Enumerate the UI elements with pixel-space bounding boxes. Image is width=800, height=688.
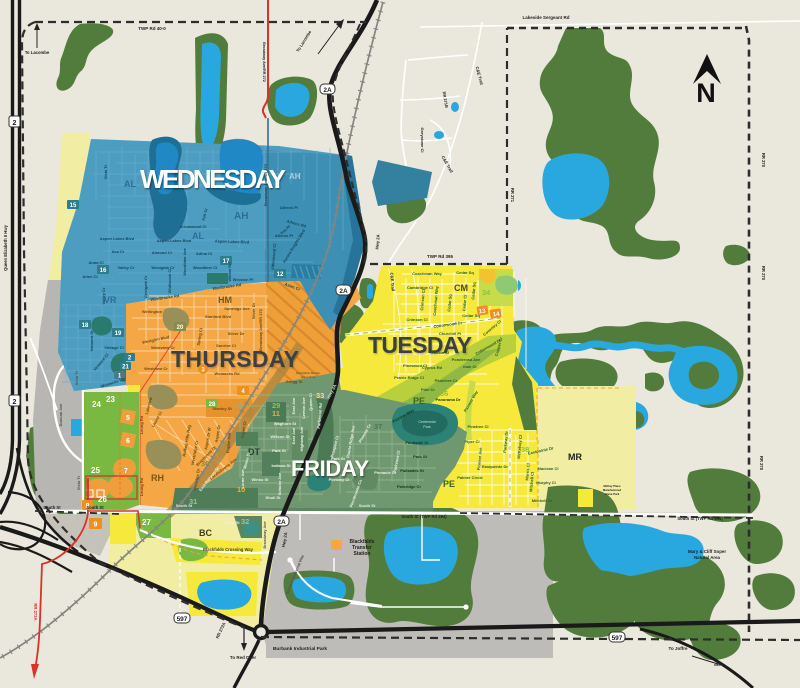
svg-text:Station: Station [354,551,371,557]
svg-text:To Joffre: To Joffre [669,646,688,651]
svg-text:THURSDAY: THURSDAY [171,346,299,372]
svg-text:CM: CM [454,283,468,293]
svg-text:To Red Deer: To Red Deer [230,655,256,660]
svg-text:Natural Area: Natural Area [694,555,721,560]
svg-text:Queen Elizabeth II Hwy: Queen Elizabeth II Hwy [3,224,8,271]
svg-text:Home Park: Home Park [301,375,316,379]
svg-text:Vintage Cl: Vintage Cl [104,345,124,350]
svg-text:20: 20 [177,325,184,331]
svg-text:19: 19 [115,331,122,337]
svg-text:Mary & Cliff Soper: Mary & Cliff Soper [688,549,726,554]
svg-text:Gregg St: Gregg St [286,379,304,384]
svg-text:Portway Cl: Portway Cl [329,477,350,482]
svg-text:Eastpointe Dr: Eastpointe Dr [482,464,508,469]
svg-text:AH: AH [234,211,248,222]
svg-text:BC: BC [199,528,212,538]
svg-text:25: 25 [91,466,100,475]
svg-text:South St: South St [359,503,376,508]
svg-text:Vista Tr: Vista Tr [74,370,79,385]
svg-text:RR 270: RR 270 [761,153,766,168]
svg-text:RR 270: RR 270 [761,266,766,281]
svg-text:Vista Tr: Vista Tr [76,475,81,490]
svg-text:Cassia Cl: Cassia Cl [431,350,449,355]
svg-text:Pinewood Cl: Pinewood Cl [403,363,427,368]
svg-text:AL: AL [124,179,136,189]
svg-text:Maclean Cl: Maclean Cl [538,466,559,471]
svg-text:AH: AH [289,172,301,181]
svg-text:RR 271: RR 271 [510,188,515,203]
svg-text:Greystone Cl: Greystone Cl [420,128,425,153]
svg-text:24: 24 [92,400,101,409]
svg-text:33: 33 [316,391,324,400]
svg-text:South St (TWP Rd 394): South St (TWP Rd 394) [401,514,447,519]
svg-text:Sunrise Cl: Sunrise Cl [216,343,236,348]
svg-text:Crimson Cl: Crimson Cl [406,317,427,322]
svg-text:Westview Cr: Westview Cr [151,345,175,350]
svg-text:Woodbine Ave: Woodbine Ave [182,248,187,276]
svg-text:South St: South St [86,505,104,510]
svg-text:23: 23 [106,395,115,404]
svg-text:Sunridge Ave: Sunridge Ave [224,306,250,311]
svg-text:N: N [696,78,716,108]
svg-text:Almond Cr: Almond Cr [152,250,173,255]
svg-text:RH: RH [151,473,164,483]
svg-text:Churchill Pl: Churchill Pl [439,331,461,336]
svg-text:Lorne Ave: Lorne Ave [240,469,245,489]
svg-text:Plumtree Cr: Plumtree Cr [435,378,458,383]
svg-text:TWP Rd 40-0: TWP Rd 40-0 [138,26,166,31]
svg-text:21: 21 [122,365,129,371]
svg-text:Womacks Rd: Womacks Rd [214,371,240,376]
svg-text:HM: HM [218,295,232,305]
svg-text:6: 6 [126,438,130,445]
svg-text:Anna Cl: Anna Cl [88,260,103,265]
svg-text:Stanford Blvd: Stanford Blvd [205,314,232,319]
svg-text:Aspen Lakes Blvd: Aspen Lakes Blvd [157,238,192,243]
svg-text:Wellington: Wellington [142,309,163,314]
svg-text:Valmont St: Valmont St [89,330,94,351]
svg-text:26: 26 [98,495,107,504]
svg-text:Piper Cl: Piper Cl [464,439,479,444]
svg-text:Ponderosa Ave: Ponderosa Ave [452,357,482,362]
svg-text:Burbank Industrial Park: Burbank Industrial Park [273,646,327,652]
svg-text:Mitchell Cr: Mitchell Cr [532,498,553,503]
svg-text:Indiana St: Indiana St [271,463,291,468]
svg-text:Parkridge Cr: Parkridge Cr [397,484,421,489]
svg-text:Pondside Cr: Pondside Cr [405,440,429,445]
svg-text:12: 12 [277,272,284,278]
svg-text:2A: 2A [339,288,348,295]
svg-text:Arlen Cl: Arlen Cl [82,274,97,279]
svg-text:5: 5 [126,415,130,422]
svg-text:Trout St: Trout St [224,520,240,525]
svg-text:Stanley St: Stanley St [212,406,232,411]
svg-text:Panorama Dr: Panorama Dr [436,397,461,402]
svg-text:Duncan Ave: Duncan Ave [58,403,63,427]
svg-text:9: 9 [94,522,98,529]
svg-text:7: 7 [124,468,128,475]
svg-text:Broadway Ave/RR 272: Broadway Ave/RR 272 [262,42,266,82]
svg-text:Coachman Way: Coachman Way [412,271,442,276]
svg-text:Valley Cr: Valley Cr [118,265,135,270]
svg-text:East Ave: East Ave [291,397,296,414]
svg-text:2A: 2A [277,519,286,526]
svg-text:To Lacombe: To Lacombe [25,50,50,55]
svg-text:Vista Tr: Vista Tr [103,164,108,179]
svg-text:Athens Pl: Athens Pl [280,205,298,210]
svg-text:Park St: Park St [331,456,345,461]
svg-text:2A: 2A [323,87,332,94]
svg-text:Leeton Ave: Leeton Ave [301,397,306,419]
svg-text:Park: Park [423,425,431,429]
svg-text:MR: MR [568,452,582,462]
svg-text:RR 270: RR 270 [759,456,764,471]
svg-text:Westview Cr: Westview Cr [144,366,168,371]
svg-text:Willow Rd: Willow Rd [227,262,232,282]
svg-text:Home Park: Home Park [605,492,620,496]
svg-text:Leung Rd: Leung Rd [139,415,144,434]
svg-text:Whitbrock Cl: Whitbrock Cl [167,269,172,294]
svg-text:2: 2 [13,399,17,406]
svg-text:Westgate Cr: Westgate Cr [143,275,148,299]
svg-text:PE: PE [413,396,425,406]
svg-text:Pinetree Cl: Pinetree Cl [468,424,489,429]
svg-text:Broadway Ave/RR 272: Broadway Ave/RR 272 [258,308,263,351]
svg-text:32: 32 [241,517,249,526]
svg-text:Waghorn St: Waghorn St [274,421,297,426]
svg-text:Prairie Ridge Cl: Prairie Ridge Cl [394,375,424,380]
svg-text:Centennial: Centennial [418,420,435,424]
svg-text:RR 273A: RR 273A [33,603,38,620]
svg-text:37: 37 [374,422,382,431]
svg-text:Cedar Sq: Cedar Sq [462,313,480,318]
svg-text:597: 597 [177,616,188,623]
svg-text:East Ave: East Ave [291,427,296,444]
svg-text:Ava Cr: Ava Cr [112,249,125,254]
svg-text:Park St: Park St [413,454,427,459]
svg-text:Aspen Lakes Blvd: Aspen Lakes Blvd [100,236,135,241]
svg-text:Willson St: Willson St [270,434,290,439]
svg-text:18: 18 [82,323,89,329]
svg-text:Murphy Cl: Murphy Cl [536,480,556,485]
svg-text:Silver Dr: Silver Dr [251,302,256,319]
svg-text:Leung Rd: Leung Rd [139,477,144,496]
svg-text:Valley Cr: Valley Cr [101,287,106,304]
svg-text:Highway Ave: Highway Ave [299,426,304,451]
svg-text:Arrowwood Cl: Arrowwood Cl [179,224,206,229]
svg-text:Broadway Ave: Broadway Ave [262,521,267,549]
svg-text:Queen Cl: Queen Cl [308,393,313,411]
svg-text:South St: South St [43,505,61,510]
svg-text:Winston Pl: Winston Pl [233,277,254,282]
svg-text:Schular Ave: Schular Ave [277,472,282,496]
svg-text:16: 16 [100,268,107,274]
svg-text:Lakeside Sergeant Rd: Lakeside Sergeant Rd [522,15,569,20]
svg-text:Woodbine Cl: Woodbine Cl [193,265,217,270]
svg-text:Pine Cr: Pine Cr [421,387,435,392]
svg-text:597: 597 [612,635,623,642]
svg-text:Palisades St: Palisades St [400,468,424,473]
svg-text:Cedar Sq: Cedar Sq [456,270,474,275]
svg-text:AL: AL [192,231,204,241]
svg-text:man Cr: man Cr [463,364,477,369]
svg-text:South St (TWP Rd 394): South St (TWP Rd 394) [677,516,723,521]
svg-text:2: 2 [13,120,17,127]
svg-text:PE: PE [443,479,455,489]
svg-text:Silver Dr: Silver Dr [228,331,245,336]
svg-text:34: 34 [482,288,491,297]
svg-text:Broadway Ave/RR 272: Broadway Ave/RR 272 [263,163,268,206]
svg-text:Adina Cl: Adina Cl [196,251,212,256]
svg-text:South St: South St [176,503,193,508]
svg-text:Palmer Circle: Palmer Circle [457,475,483,480]
svg-text:TWP Rd 395: TWP Rd 395 [427,254,453,259]
svg-text:Park St: Park St [272,448,286,453]
svg-text:27: 27 [142,518,151,527]
svg-text:Blackfalds Crossing Way: Blackfalds Crossing Way [203,547,254,552]
svg-text:11: 11 [272,409,280,418]
svg-text:Winko St: Winko St [251,477,269,482]
svg-text:15: 15 [70,203,77,209]
